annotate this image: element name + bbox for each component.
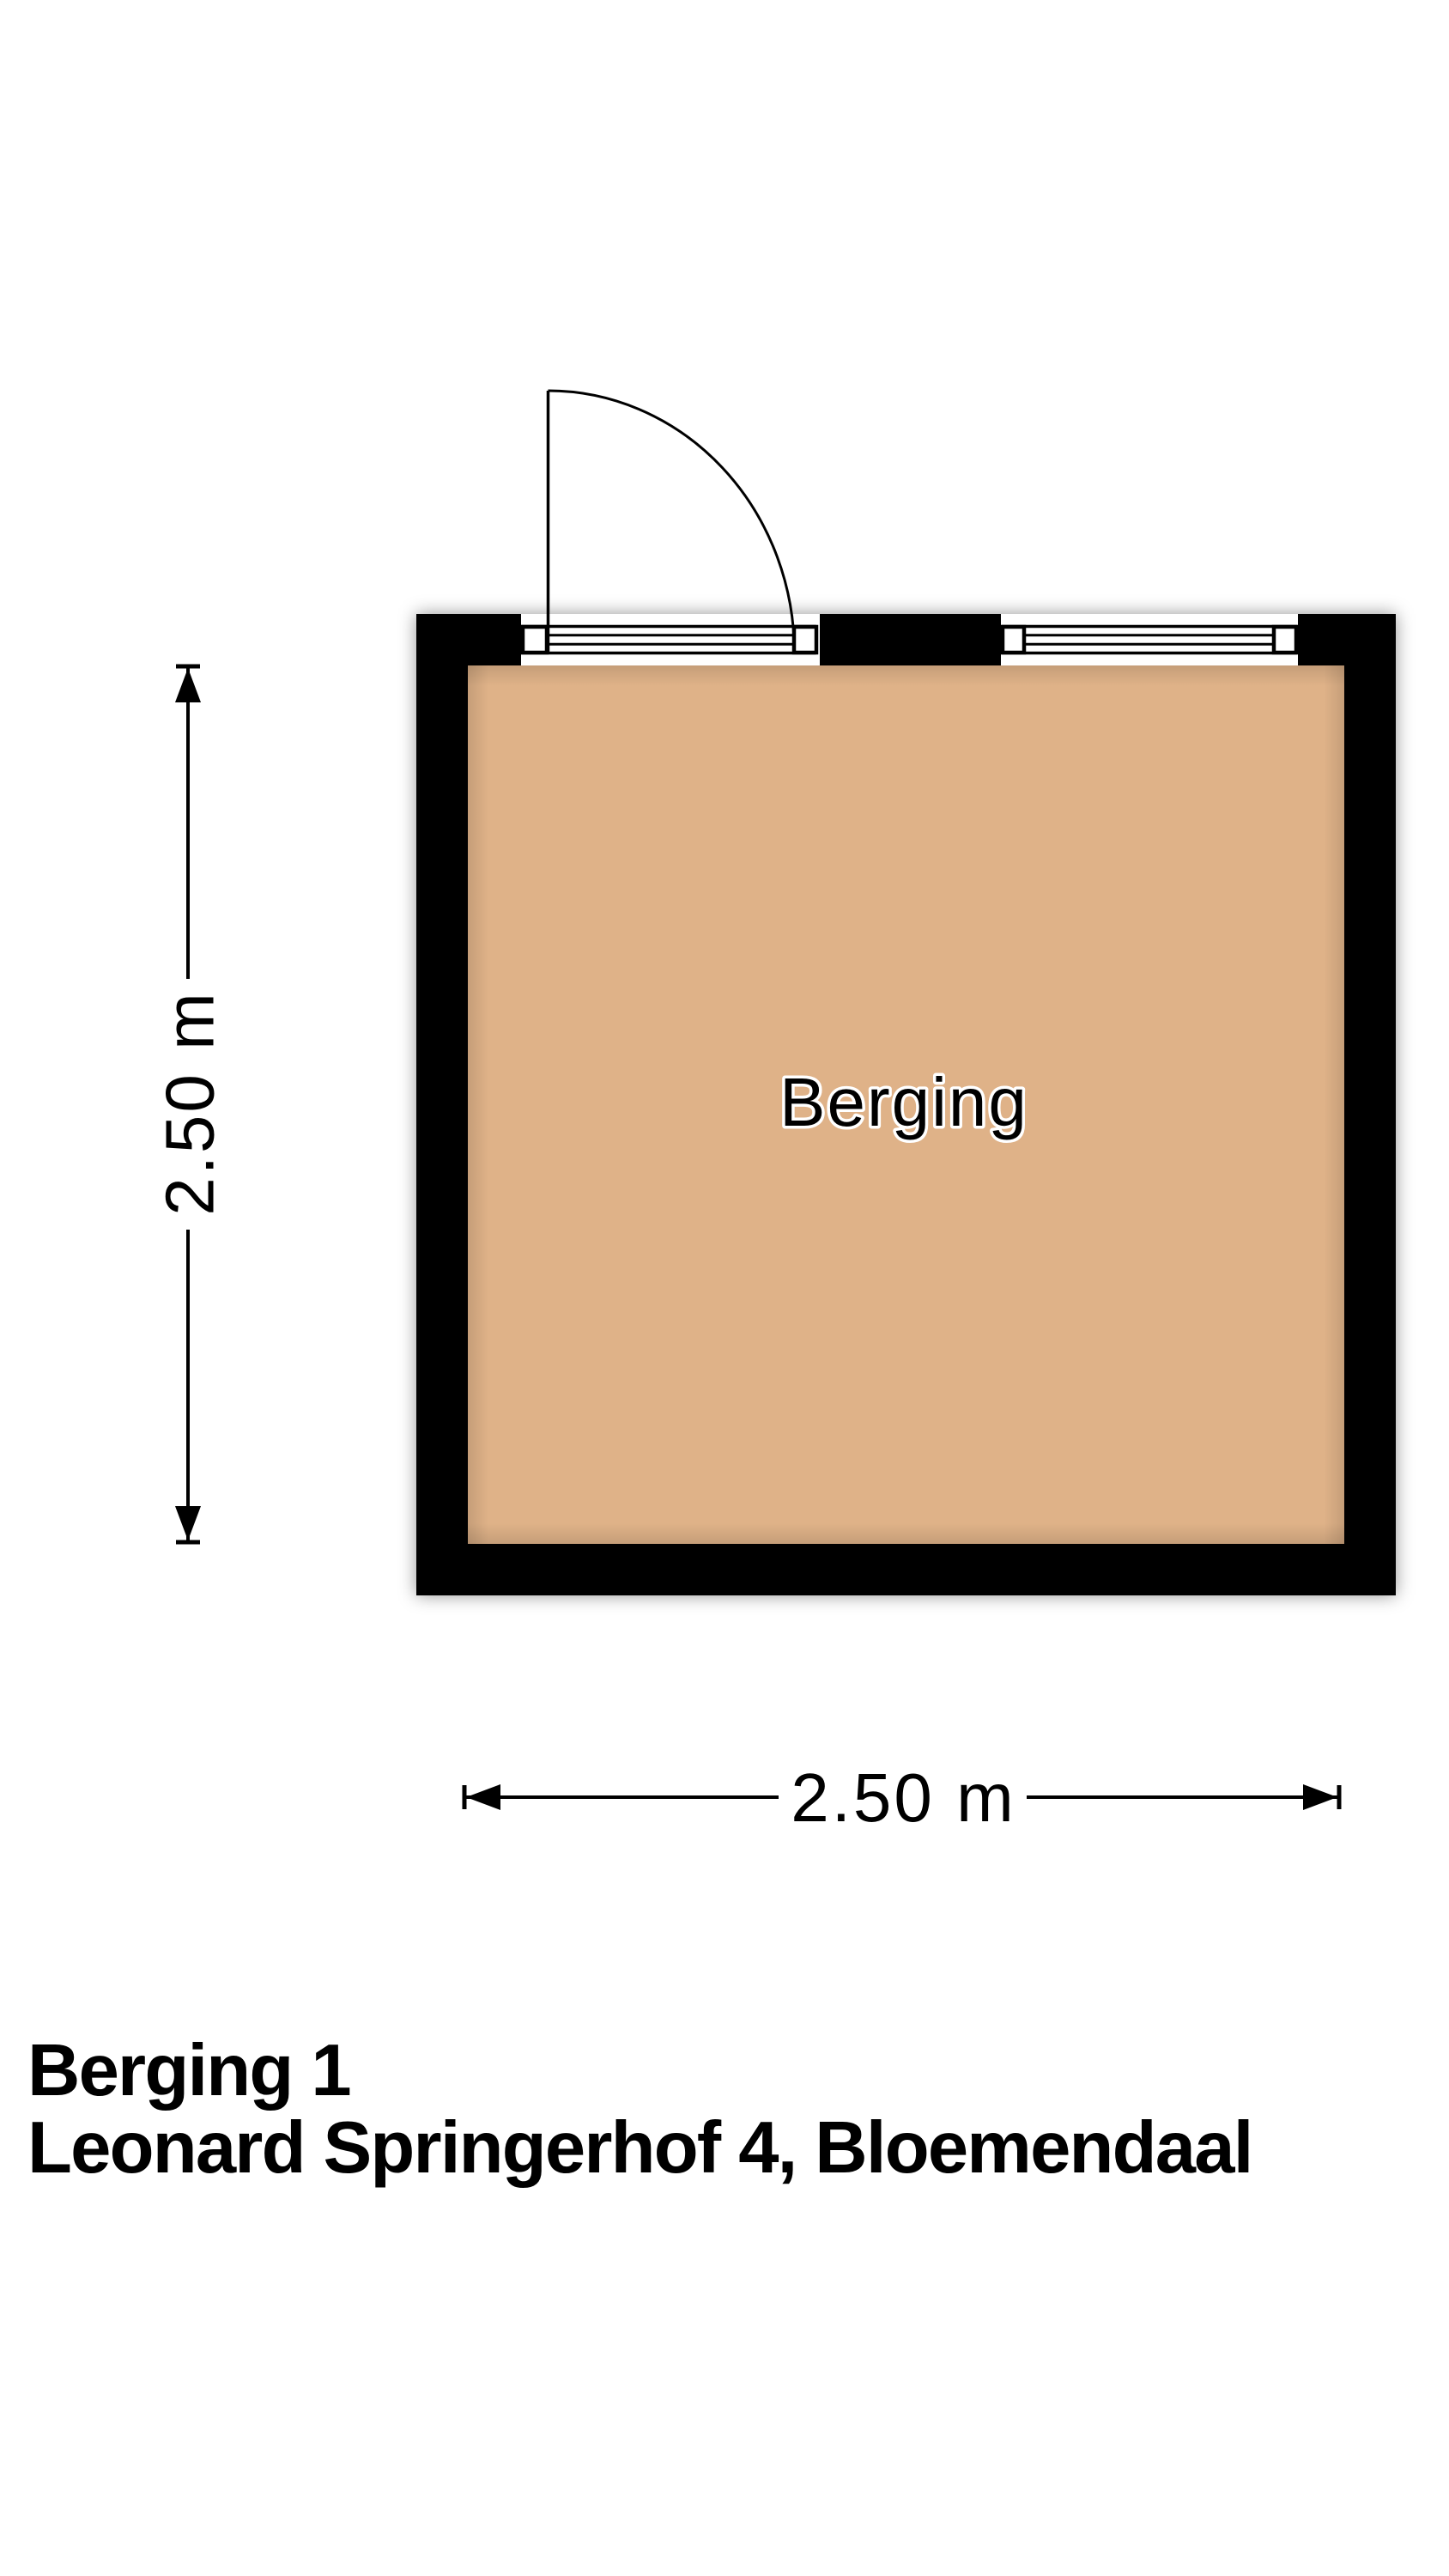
svg-text:2.50 m: 2.50 m <box>152 990 228 1216</box>
svg-text:Leonard Springerhof 4, Bloemen: Leonard Springerhof 4, Bloemendaal <box>27 2107 1252 2189</box>
svg-text:2.50 m: 2.50 m <box>791 1759 1016 1836</box>
svg-text:Berging: Berging <box>779 1064 1028 1140</box>
svg-text:Berging 1: Berging 1 <box>27 2030 350 2111</box>
